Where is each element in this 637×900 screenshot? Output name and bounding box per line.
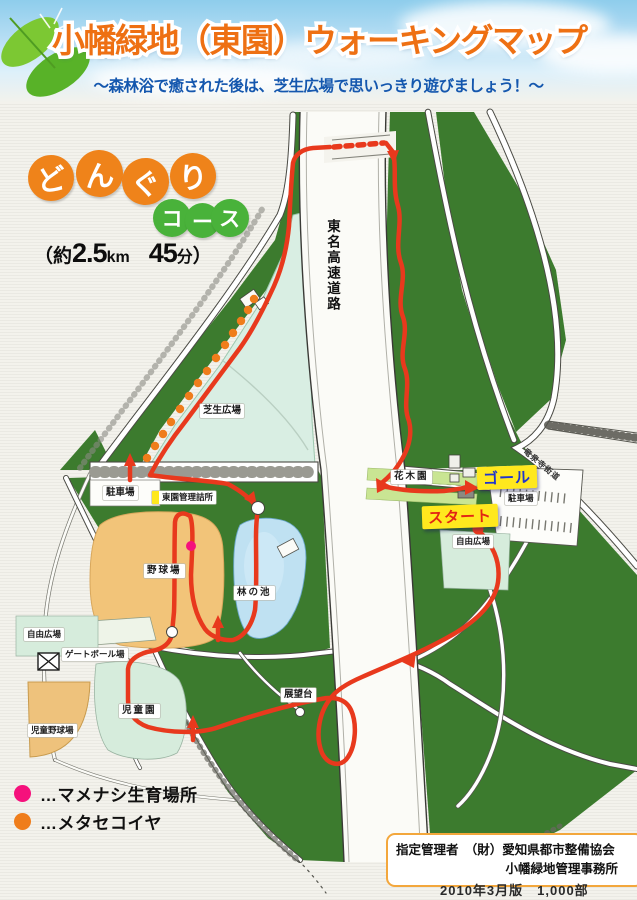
label-lookout: 展望台 (281, 688, 316, 702)
legend-mamenashi: …マメナシ生育場所 (14, 781, 198, 806)
label-gateball: ゲートボール場 (62, 648, 128, 661)
header-banner: 小幡緑地（東園）ウォーキングマップ 小幡緑地（東園）ウォーキングマップ ～森林浴… (0, 0, 637, 103)
page-title-text: 小幡緑地（東園）ウォーキングマップ (52, 14, 587, 62)
course-info: （約2.5km 45分） (34, 238, 212, 269)
label-childrens-baseball: 児童野球場 (28, 724, 77, 737)
walking-map-page: 東名高速道路 竜泉寺街道 芝生広場 駐車場 東園管理詰所 野球場 林の池 ゲート… (0, 0, 637, 900)
mamenashi-legend-label: …マメナシ生育場所 (40, 781, 198, 806)
label-office: 東園管理詰所 (152, 491, 216, 504)
page-title: 小幡緑地（東園）ウォーキングマップ 小幡緑地（東園）ウォーキングマップ (52, 14, 632, 66)
label-free-plaza-east: 自由広場 (453, 535, 493, 548)
label-parking-east: 駐車場 (505, 492, 537, 505)
page-subtitle: ～森林浴で癒された後は、芝生広場で思いっきり遊びましょう！～ (0, 74, 637, 96)
shelter-symbol (38, 653, 59, 670)
metasequoia-legend-dot (14, 813, 31, 830)
label-baseball: 野球場 (144, 564, 185, 578)
label-parking-west: 駐車場 (103, 486, 138, 500)
administrator-box: 指定管理者 （財）愛知県都市整備協会 小幡緑地管理事務所 (386, 833, 637, 887)
metasequoia-legend-label: …メタセコイヤ (40, 809, 162, 834)
label-childrens-garden: 児童園 (119, 704, 160, 718)
legend-metasequoia: …メタセコイヤ (14, 809, 162, 834)
childrens-baseball-area (28, 682, 90, 757)
administrator-line2: 小幡緑地管理事務所 (396, 860, 634, 879)
highway-label: 東名高速道路 (322, 219, 342, 312)
administrator-line1: 指定管理者 （財）愛知県都市整備協会 (396, 841, 634, 860)
edition-note: 2010年3月版 1,000部 (440, 880, 589, 899)
goal-badge: ゴール (477, 465, 538, 490)
mamenashi-legend-dot (14, 785, 31, 802)
label-free-plaza-west: 自由広場 (24, 628, 64, 641)
label-lawn-plaza: 芝生広場 (200, 404, 244, 418)
start-badge: スタート (422, 504, 499, 530)
label-flower-garden: 花木園 (391, 470, 432, 484)
lookout-point (296, 708, 305, 717)
label-pond: 林の池 (234, 586, 275, 600)
park-map (0, 0, 637, 900)
